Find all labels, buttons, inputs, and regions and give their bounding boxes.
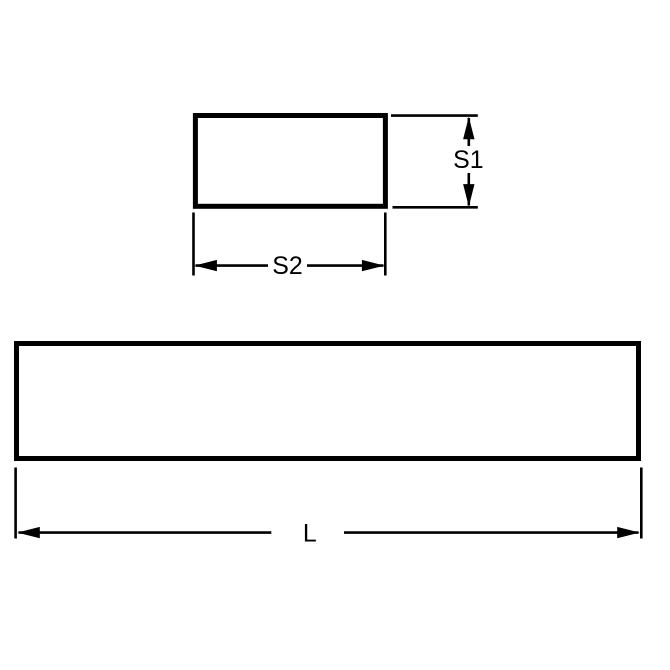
svg-text:S1: S1	[453, 146, 483, 174]
svg-text:S2: S2	[272, 252, 302, 280]
svg-text:L: L	[303, 520, 317, 548]
